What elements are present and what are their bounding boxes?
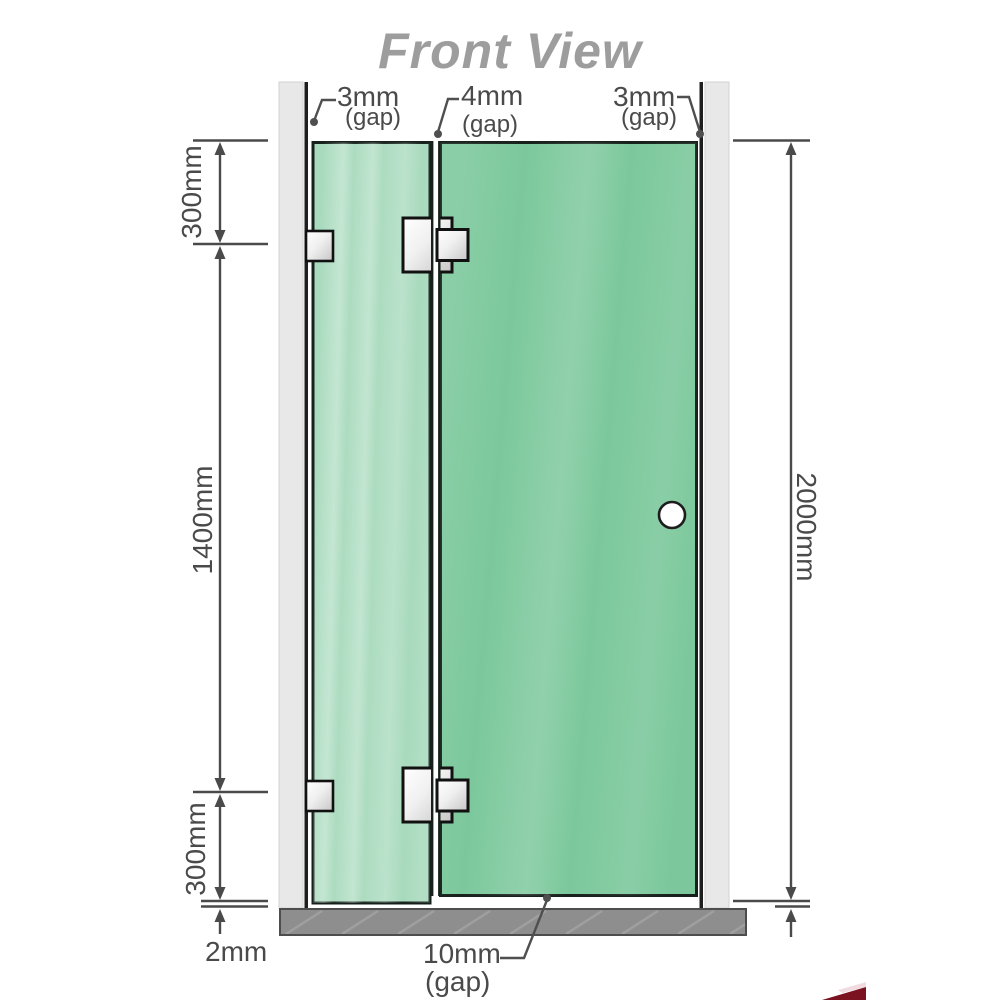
- dim-label-left-middle: 1400mm: [189, 466, 217, 575]
- front-view-diagram: Front View 3mm (gap) 4mm (gap) 3mm (gap)…: [0, 0, 1000, 1000]
- gap-label-bottom-suffix: (gap): [425, 968, 490, 996]
- bottom-wall-bracket: [306, 781, 333, 811]
- gap-label-bottom: 10mm: [423, 940, 501, 968]
- page-title: Front View: [280, 26, 740, 76]
- gap-label-top-mid: 4mm: [461, 82, 523, 110]
- dim-label-left-bottom: 300mm: [182, 802, 210, 895]
- door-knob: [659, 502, 685, 528]
- door-glass-panel: [441, 143, 697, 896]
- dim-label-floor-gap: 2mm: [205, 938, 267, 966]
- right-wall-profile: [700, 82, 730, 908]
- top-hinge-tab: [437, 230, 468, 261]
- floor-bar: [280, 909, 766, 935]
- diagram-graphics: [0, 0, 1000, 1000]
- gap-label-top-right-suffix: (gap): [621, 106, 677, 130]
- bottom-hinge-tab: [437, 780, 468, 811]
- gap-label-top-left-suffix: (gap): [345, 106, 401, 130]
- top-wall-bracket: [306, 231, 333, 261]
- left-wall-profile: [279, 82, 308, 908]
- dim-label-right-height: 2000mm: [792, 473, 820, 582]
- logo-sliver: [822, 982, 866, 1000]
- dim-label-left-top: 300mm: [178, 145, 206, 238]
- gap-label-top-mid-suffix: (gap): [462, 113, 518, 137]
